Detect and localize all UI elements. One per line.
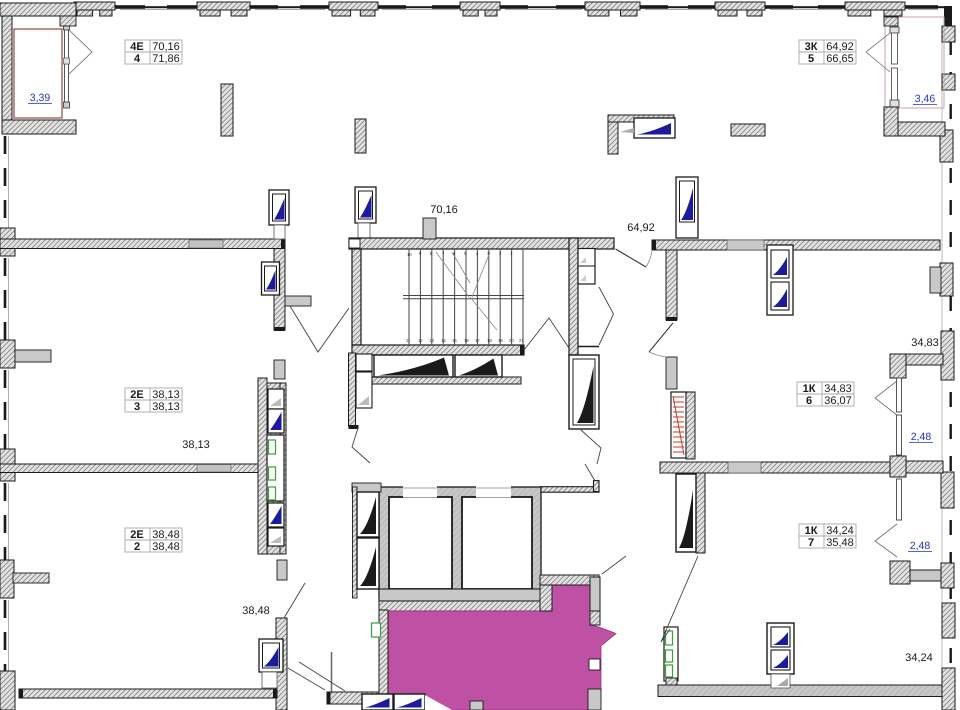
svg-text:2Е: 2Е: [130, 529, 143, 541]
svg-text:38,13: 38,13: [152, 389, 180, 401]
svg-text:34,83: 34,83: [911, 337, 939, 349]
svg-text:38,48: 38,48: [242, 605, 270, 617]
svg-text:6: 6: [806, 395, 812, 407]
svg-text:13: 13: [429, 338, 434, 343]
svg-text:2,48: 2,48: [910, 540, 931, 552]
svg-text:14: 14: [441, 338, 446, 343]
svg-text:34,24: 34,24: [905, 652, 933, 664]
svg-text:38,48: 38,48: [152, 529, 180, 541]
svg-text:2,48: 2,48: [911, 431, 932, 443]
svg-text:17: 17: [475, 338, 480, 343]
svg-text:19: 19: [498, 338, 503, 343]
svg-text:18: 18: [487, 338, 492, 343]
svg-text:16: 16: [464, 338, 469, 343]
svg-text:35,48: 35,48: [826, 537, 854, 549]
svg-text:36,07: 36,07: [824, 395, 852, 407]
svg-text:1К: 1К: [803, 383, 816, 395]
svg-text:12: 12: [418, 338, 423, 343]
svg-text:38,13: 38,13: [152, 401, 180, 413]
svg-text:70,16: 70,16: [152, 41, 180, 53]
svg-text:10: 10: [407, 252, 412, 257]
svg-text:38,13: 38,13: [182, 439, 210, 451]
svg-text:38,48: 38,48: [152, 541, 180, 553]
svg-text:64,92: 64,92: [826, 41, 854, 53]
svg-text:3,39: 3,39: [30, 92, 51, 104]
svg-text:71,86: 71,86: [152, 53, 180, 65]
svg-text:21: 21: [519, 338, 524, 343]
svg-text:3К: 3К: [805, 41, 818, 53]
svg-text:2Е: 2Е: [130, 389, 143, 401]
svg-text:5: 5: [808, 53, 814, 65]
svg-text:34,83: 34,83: [824, 383, 852, 395]
svg-text:2: 2: [134, 541, 140, 553]
svg-text:3: 3: [134, 401, 140, 413]
svg-text:34,24: 34,24: [826, 525, 854, 537]
svg-text:7: 7: [808, 537, 814, 549]
svg-text:1К: 1К: [805, 525, 818, 537]
svg-text:4Е: 4Е: [130, 41, 143, 53]
svg-text:11: 11: [406, 338, 411, 343]
svg-text:15: 15: [452, 338, 457, 343]
svg-text:70,16: 70,16: [430, 204, 458, 216]
svg-text:64,92: 64,92: [627, 222, 655, 234]
svg-text:3,46: 3,46: [915, 93, 936, 105]
svg-text:20: 20: [509, 338, 514, 343]
svg-text:4: 4: [134, 53, 141, 65]
svg-text:66,65: 66,65: [826, 53, 854, 65]
